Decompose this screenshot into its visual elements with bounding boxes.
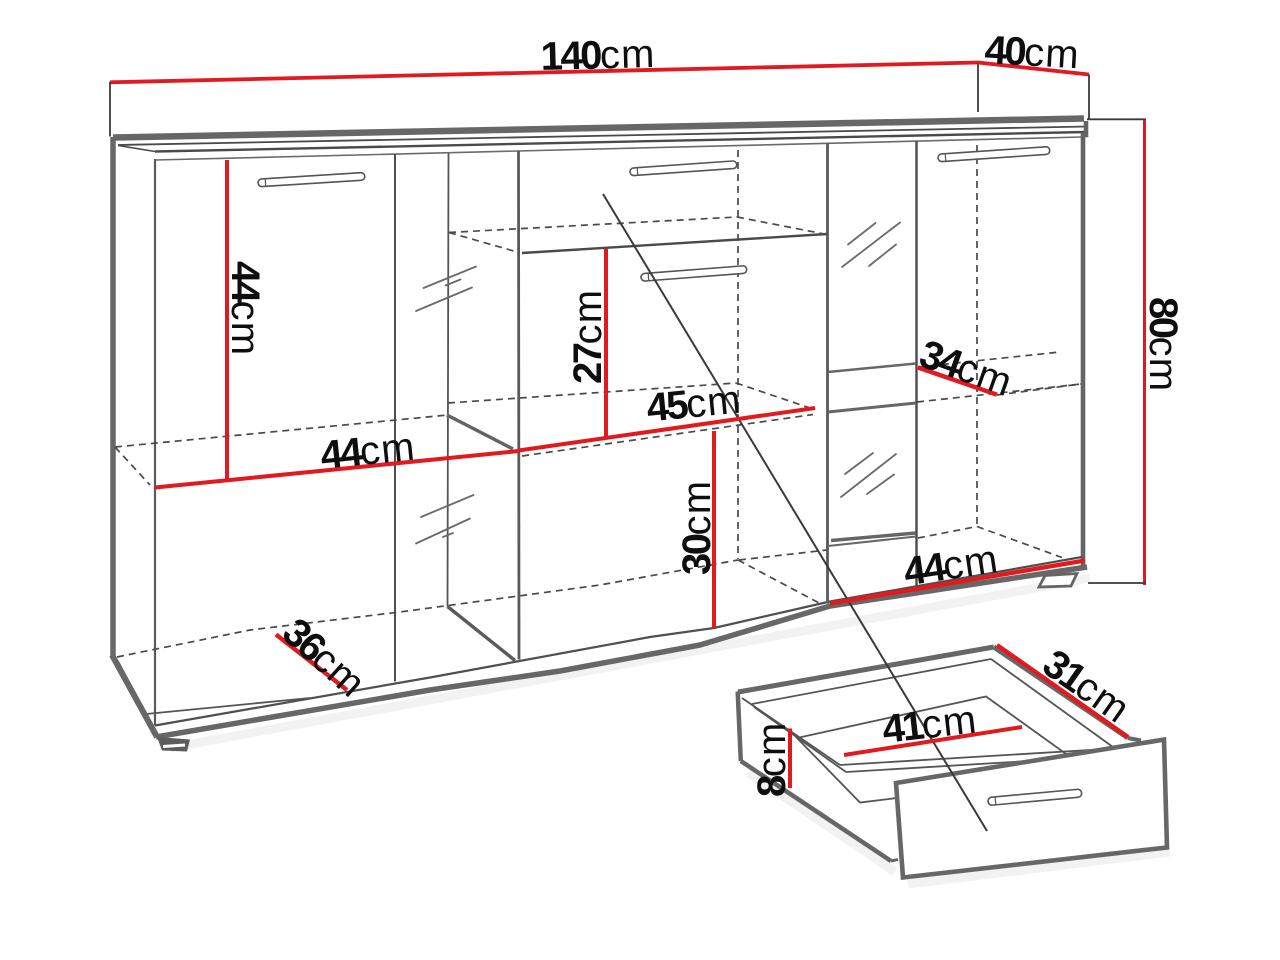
svg-text:44cm: 44cm (223, 261, 267, 356)
svg-text:27cm: 27cm (566, 289, 610, 384)
svg-text:30cm: 30cm (675, 480, 719, 575)
svg-text:40cm: 40cm (983, 28, 1081, 77)
svg-text:80cm: 80cm (1141, 297, 1185, 392)
svg-text:45cm: 45cm (645, 378, 744, 431)
svg-text:140cm: 140cm (540, 32, 656, 79)
svg-text:8cm: 8cm (750, 722, 794, 797)
